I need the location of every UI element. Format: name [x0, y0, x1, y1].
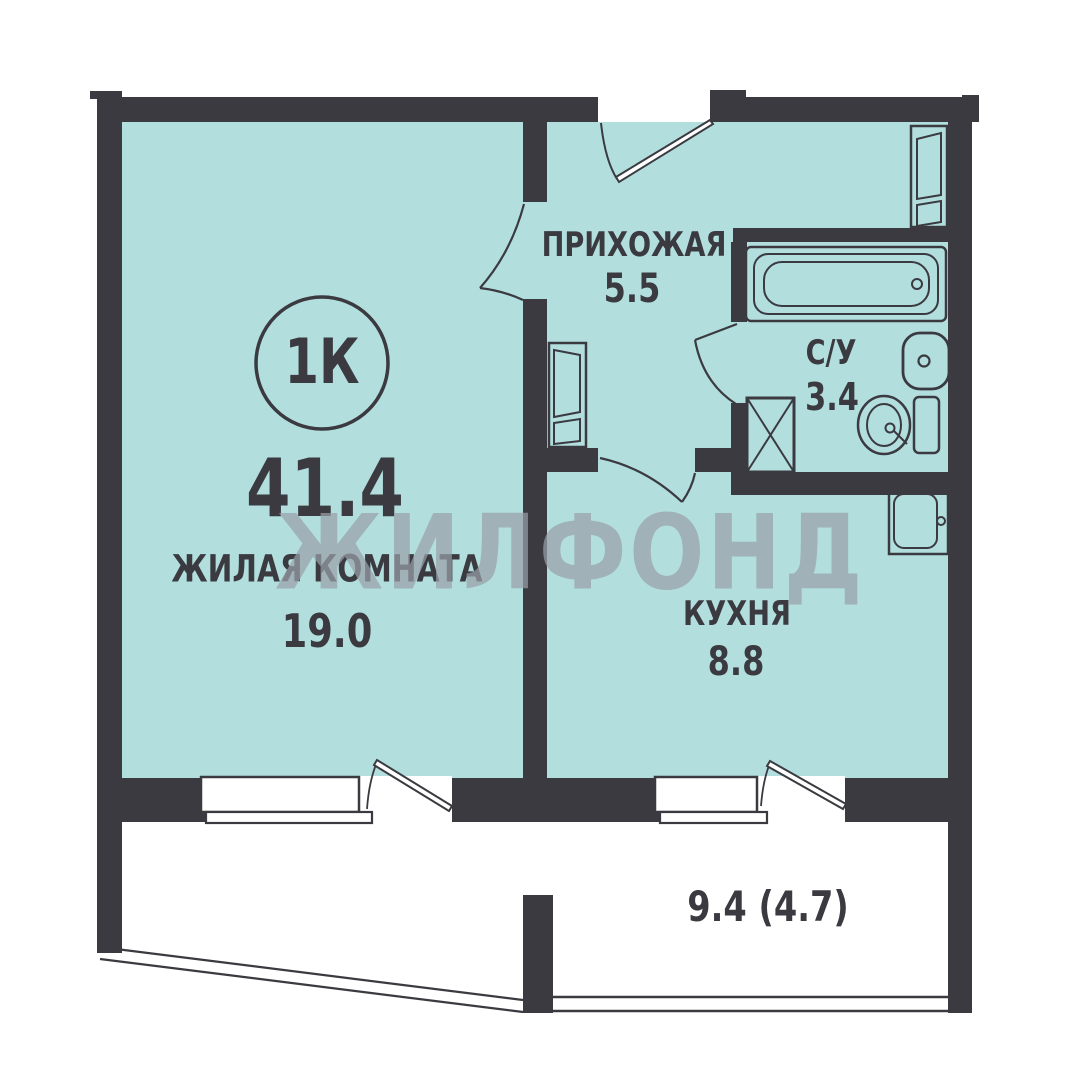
window-living: [201, 777, 359, 812]
wall-top-living: [97, 97, 598, 122]
hallway-label: ПРИХОЖАЯ: [542, 228, 727, 262]
wall-balcony-pier: [523, 895, 553, 1013]
wall-hall-kitchen-right: [695, 448, 733, 472]
floorplan-image: 1К 41.4 ЖИЛАЯ КОМНАТА 19.0 ПРИХОЖАЯ 5.5 …: [0, 0, 1080, 1080]
wall-living-divider-stub: [523, 122, 547, 202]
bathroom-area: 3.4: [805, 378, 859, 416]
wall-hall-kitchen-left: [523, 448, 598, 472]
wall-kitchen-top: [733, 472, 948, 495]
wall-left: [97, 97, 122, 953]
wall-right: [948, 97, 972, 1013]
wall-bathroom-top: [733, 228, 948, 242]
balcony-area-label: 9.4 (4.7): [687, 886, 848, 928]
railing-diagonal-top: [100, 947, 523, 1000]
bathroom-label: С/У: [806, 336, 857, 370]
railing-diagonal-bottom: [100, 959, 523, 1012]
watermark: ЖИЛФОНД: [275, 503, 865, 606]
window-living-sill: [206, 812, 372, 823]
living-room-area: 19.0: [282, 608, 373, 654]
wall-bathroom-left-upper: [731, 242, 747, 322]
window-kitchen: [655, 777, 757, 812]
wall-top-right: [710, 97, 962, 122]
wall-entrance-notch: [710, 90, 746, 98]
hallway-area: 5.5: [604, 269, 661, 309]
window-kitchen-sill: [660, 812, 767, 823]
type-badge-label: 1К: [284, 331, 359, 393]
kitchen-area: 8.8: [708, 642, 765, 682]
